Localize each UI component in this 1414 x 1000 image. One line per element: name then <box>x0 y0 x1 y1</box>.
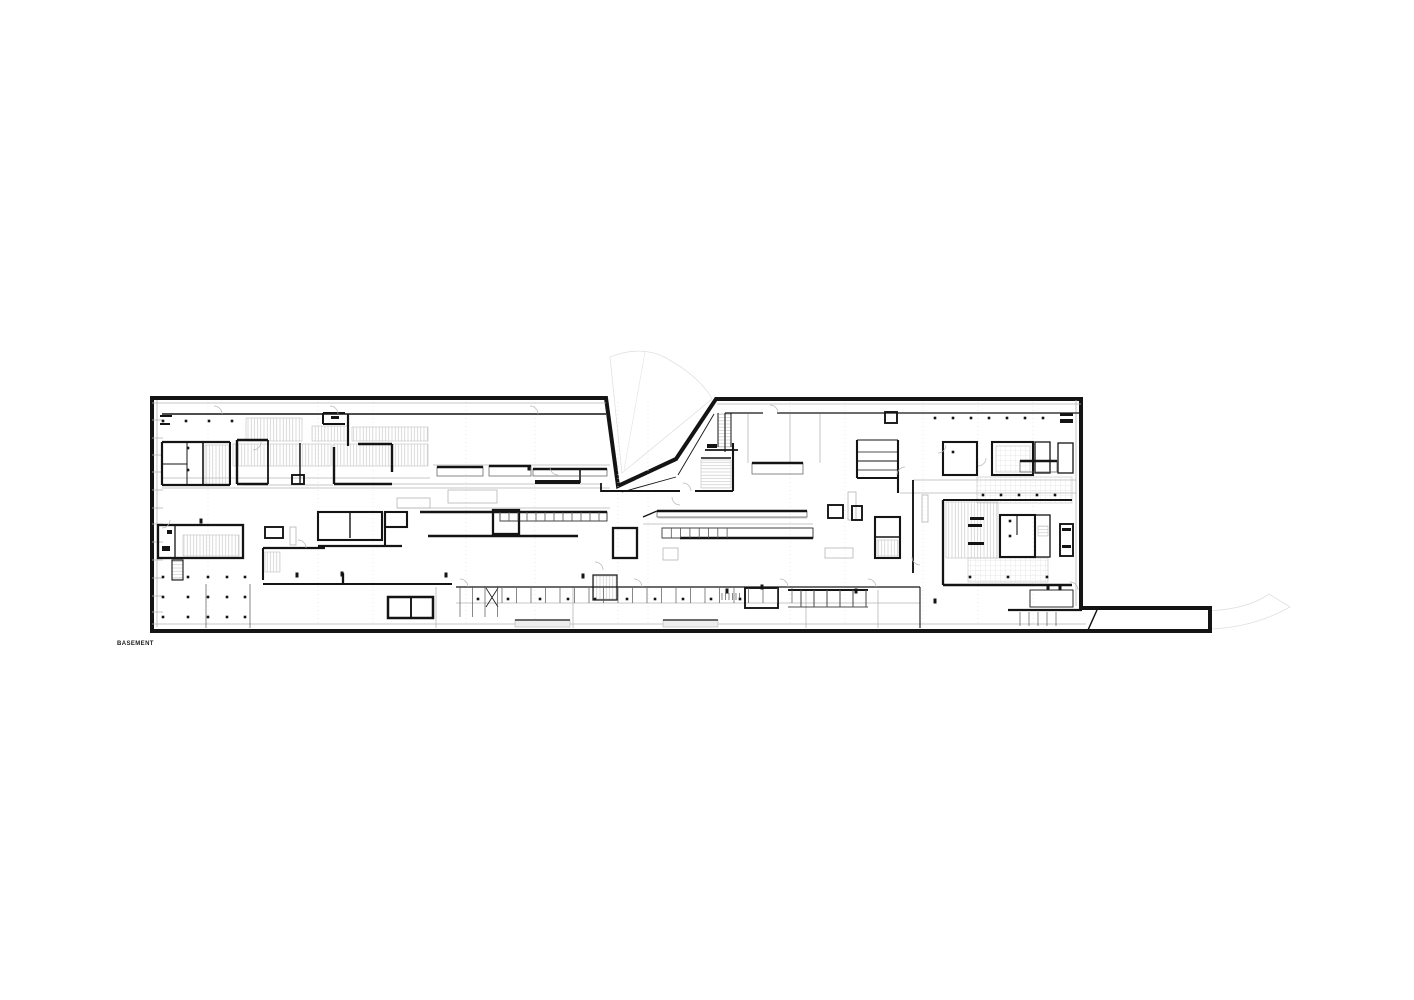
page: BASEMENT <box>0 0 1414 1000</box>
floor-level-label: BASEMENT <box>117 641 154 647</box>
floor-plan-drawing <box>0 0 1414 1000</box>
